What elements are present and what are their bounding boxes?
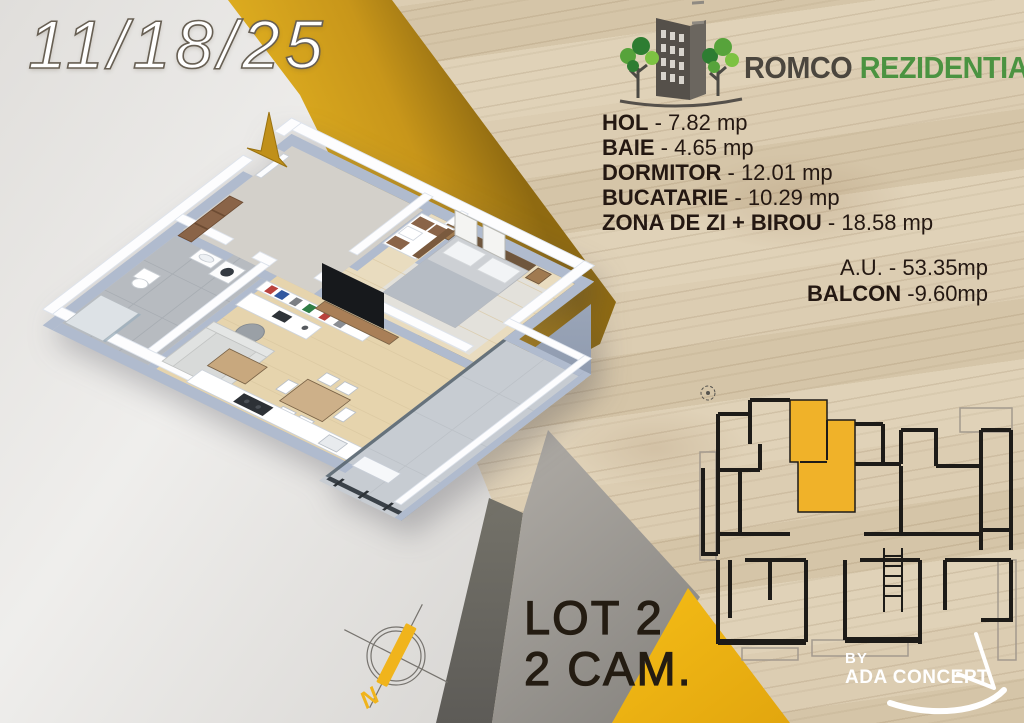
sail-swoosh xyxy=(890,690,1004,711)
totals-block: A.U. - 53.35mp BALCON -9.60mp xyxy=(700,255,988,307)
balcony-area-line: BALCON -9.60mp xyxy=(700,281,988,307)
credit-by: BY xyxy=(845,650,989,667)
brand-secondary: REZIDENTIAL xyxy=(860,50,1024,85)
usable-area-line: A.U. - 53.35mp xyxy=(700,255,988,281)
lot-rooms: 2 CAM. xyxy=(524,643,693,694)
credit-name: ADA CONCEPT xyxy=(845,667,989,689)
room-area-list: HOL - 7.82 mp BAIE - 4.65 mp DORMITOR - … xyxy=(602,110,933,235)
brand-wordmark: ROMCO REZIDENTIAL xyxy=(744,50,1024,86)
room-line: ZONA DE ZI + BIROU - 18.58 mp xyxy=(602,210,933,235)
brand-primary: ROMCO xyxy=(744,50,852,85)
poster: N 11/18/2 xyxy=(0,0,1024,723)
lot-number: LOT 2 xyxy=(524,592,693,643)
room-line: HOL - 7.82 mp xyxy=(602,110,933,135)
room-line: BAIE - 4.65 mp xyxy=(602,135,933,160)
credit-block: BY ADA CONCEPT xyxy=(845,650,989,689)
date-stamp: 11/18/25 xyxy=(28,6,328,84)
room-line: BUCATARIE - 10.29 mp xyxy=(602,185,933,210)
room-line: DORMITOR - 12.01 mp xyxy=(602,160,933,185)
lot-title: LOT 2 2 CAM. xyxy=(524,592,693,694)
ada-concept-logo xyxy=(0,0,1024,723)
